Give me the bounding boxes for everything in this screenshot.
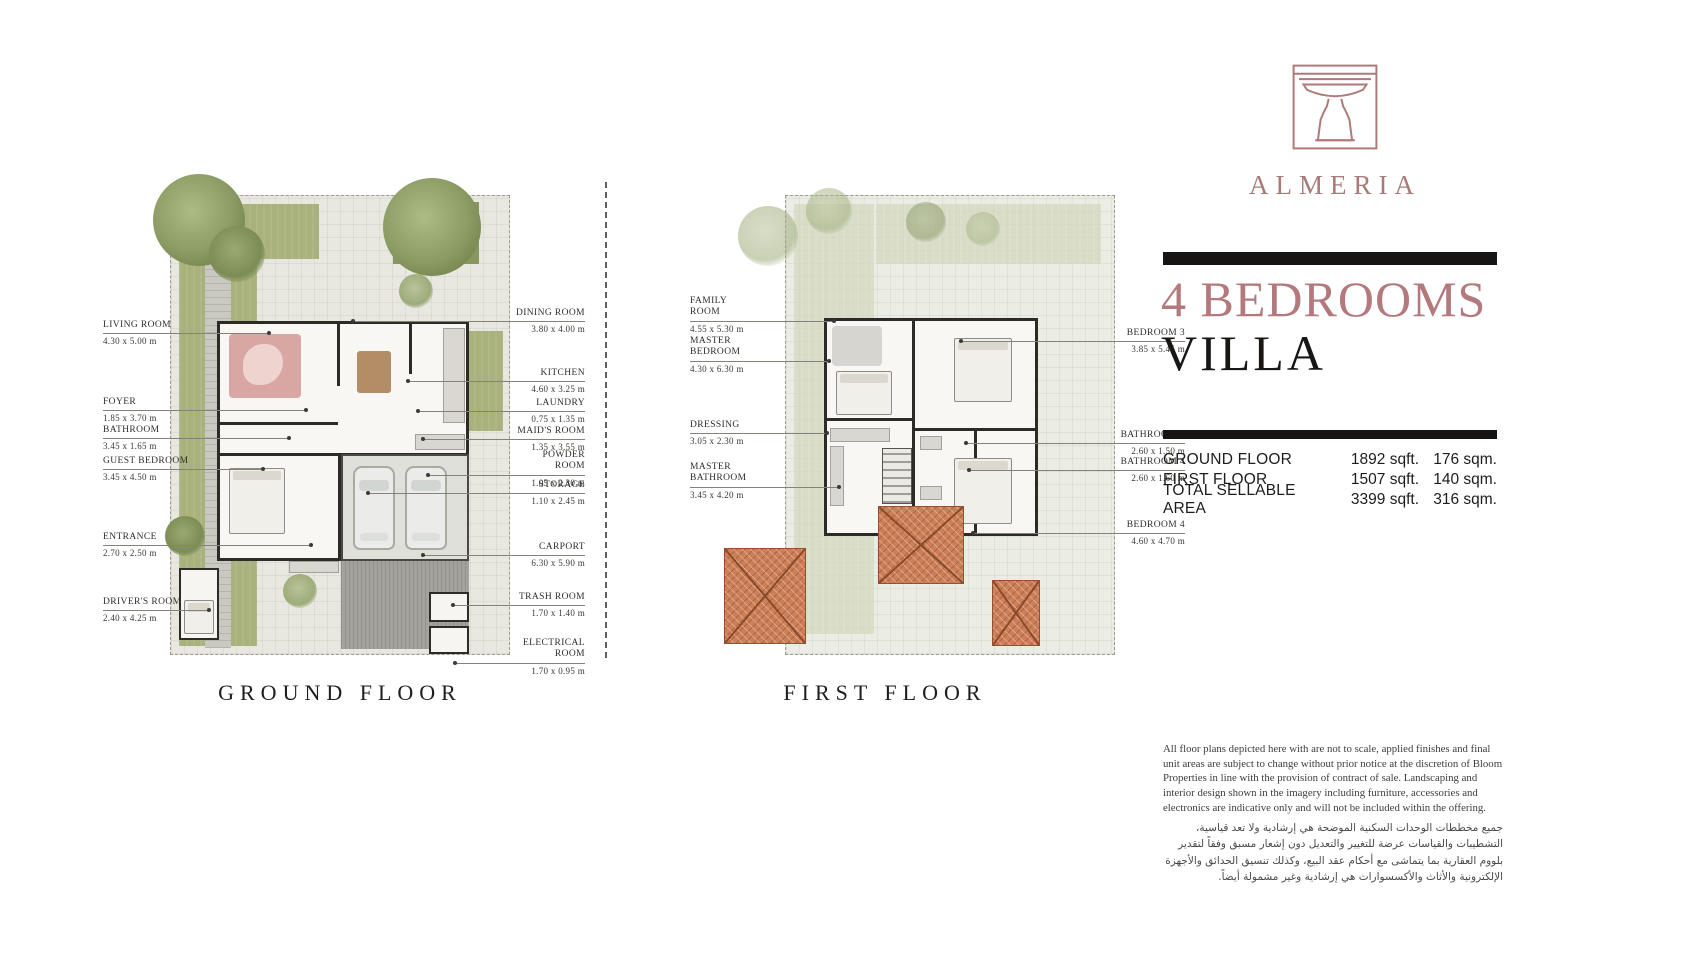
room-name: POWDER ROOM	[517, 450, 585, 472]
room-dimension: 3.45 x 4.50 m	[103, 472, 264, 482]
room-dimension: 4.55 x 5.30 m	[690, 324, 835, 334]
leader-line	[690, 433, 828, 434]
roof-section	[878, 506, 964, 584]
room-dimension: 2.70 x 2.50 m	[103, 548, 312, 558]
page-title-line1: 4 BEDROOMS	[1161, 274, 1486, 324]
room-name: MAID'S ROOM	[422, 426, 585, 437]
tree-faint	[966, 212, 1000, 246]
label-bathroom: BATHROOM 3.45 x 1.65 m	[103, 425, 290, 451]
area-sqm: 316 sqm.	[1419, 491, 1497, 509]
label-maids-room: MAID'S ROOM 1.35 x 3.55 m	[422, 426, 585, 452]
room-dimension: 1.85 x 3.70 m	[103, 413, 307, 423]
leader-line	[427, 475, 585, 476]
floor-label: TOTAL SELLABLE AREA	[1163, 482, 1327, 518]
room-dimension: 6.30 x 5.90 m	[422, 558, 585, 568]
dressing-wardrobe	[830, 428, 890, 442]
label-carport: CARPORT 6.30 x 5.90 m	[422, 542, 585, 568]
tree	[209, 226, 265, 282]
area-table: GROUND FLOOR 1892 sqft. 176 sqm. FIRST F…	[1163, 450, 1497, 510]
tree	[383, 178, 481, 276]
room-name: ENTRANCE	[103, 532, 312, 543]
label-trash-room: TRASH ROOM 1.70 x 1.40 m	[452, 592, 585, 618]
leader-line	[417, 411, 585, 412]
room-name: TRASH ROOM	[452, 592, 585, 603]
room-name: LIVING ROOM	[103, 320, 270, 331]
palm-tree	[399, 274, 433, 308]
room-dimension: 4.30 x 5.00 m	[103, 336, 270, 346]
table-rule-bar	[1163, 430, 1497, 439]
staircase	[882, 448, 912, 504]
tree	[283, 574, 317, 608]
room-name: GUEST BEDROOM	[103, 456, 264, 467]
room-dimension: 1.70 x 0.95 m	[454, 666, 585, 676]
room-dimension: 2.60 x 1.50 m	[965, 446, 1185, 456]
room-name: MASTER BEDROOM	[690, 336, 758, 358]
leader-line	[454, 663, 585, 664]
ground-floor-caption: GROUND FLOOR	[170, 680, 510, 706]
leader-line	[968, 470, 1185, 471]
area-sqft: 3399 sqft.	[1327, 491, 1419, 509]
room-dimension: 2.60 x 1.60 m	[968, 473, 1185, 483]
area-sqft: 1507 sqft.	[1327, 471, 1419, 489]
room-name: FAMILY ROOM	[690, 296, 758, 318]
label-entrance: ENTRANCE 2.70 x 2.50 m	[103, 532, 312, 558]
tree-faint	[738, 206, 798, 266]
label-living-room: LIVING ROOM 4.30 x 5.00 m	[103, 320, 270, 346]
bathroom-fixture	[920, 486, 942, 500]
label-dining-room: DINING ROOM 3.80 x 4.00 m	[352, 308, 585, 334]
room-name: DRIVER'S ROOM	[103, 597, 210, 608]
label-foyer: FOYER 1.85 x 3.70 m	[103, 397, 307, 423]
leader-line	[690, 361, 830, 362]
label-electrical-room: ELECTRICAL ROOM 1.70 x 0.95 m	[454, 638, 585, 676]
disclaimer-arabic: جميع مخططات الوحدات السكنية الموضحة هي إ…	[1163, 820, 1503, 885]
entrance-step	[289, 561, 339, 573]
room-dimension: 4.30 x 6.30 m	[690, 364, 830, 374]
room-dimension: 3.05 x 2.30 m	[690, 436, 828, 446]
room-name: CARPORT	[422, 542, 585, 553]
leader-line	[103, 410, 307, 411]
room-name: BATHROOM 3	[965, 430, 1185, 441]
interior-wall	[827, 418, 912, 421]
leader-line	[103, 438, 290, 439]
leader-line	[422, 555, 585, 556]
bathroom-fixture	[920, 436, 942, 450]
label-bathroom-3: BATHROOM 3 2.60 x 1.50 m	[965, 430, 1185, 456]
label-guest-bedroom: GUEST BEDROOM 3.45 x 4.50 m	[103, 456, 264, 482]
room-dimension: 3.45 x 1.65 m	[103, 441, 290, 451]
tree-faint	[806, 188, 852, 234]
room-name: BEDROOM 3	[960, 328, 1185, 339]
floor-label: GROUND FLOOR	[1163, 451, 1327, 469]
area-sqm: 140 sqm.	[1419, 471, 1497, 489]
room-dimension: 3.80 x 4.00 m	[352, 324, 585, 334]
leader-line	[103, 469, 264, 470]
label-kitchen: KITCHEN 4.60 x 3.25 m	[407, 368, 585, 394]
title-rule-bar	[1163, 252, 1497, 265]
label-storage: STORAGE 1.10 x 2.45 m	[367, 480, 585, 506]
room-dimension: 2.40 x 4.25 m	[103, 613, 210, 623]
fountain-logo-icon	[1290, 62, 1380, 152]
first-floor-plan	[785, 195, 1115, 655]
room-name: DINING ROOM	[352, 308, 585, 319]
room-dimension: 1.10 x 2.45 m	[367, 496, 585, 506]
disclaimer-english: All floor plans depicted here with are n…	[1163, 742, 1503, 815]
label-family-room: FAMILY ROOM 4.55 x 5.30 m	[690, 296, 835, 334]
label-bedroom-3: BEDROOM 3 3.85 x 5.45 m	[960, 328, 1185, 354]
leader-line	[422, 439, 585, 440]
label-drivers-room: DRIVER'S ROOM 2.40 x 4.25 m	[103, 597, 210, 623]
family-room-rug	[832, 326, 882, 366]
label-dressing: DRESSING 3.05 x 2.30 m	[690, 420, 828, 446]
leader-line	[452, 605, 585, 606]
label-bedroom-4: BEDROOM 4 4.60 x 4.70 m	[972, 520, 1185, 546]
master-bed	[836, 371, 892, 415]
page-title-line2: VILLA	[1161, 328, 1326, 378]
room-dimension: 1.70 x 1.40 m	[452, 608, 585, 618]
leader-line	[103, 610, 210, 611]
leader-line	[965, 443, 1185, 444]
leader-line	[960, 341, 1185, 342]
room-name: KITCHEN	[407, 368, 585, 379]
room-dimension: 3.85 x 5.45 m	[960, 344, 1185, 354]
room-name: BATHROOM	[103, 425, 290, 436]
label-bathroom-4: BATHROOM 4 2.60 x 1.60 m	[968, 457, 1185, 483]
leader-line	[352, 321, 585, 322]
leader-line	[690, 321, 835, 322]
table-row: GROUND FLOOR 1892 sqft. 176 sqm.	[1163, 450, 1497, 470]
label-laundry: LAUNDRY 0.75 x 1.35 m	[417, 398, 585, 424]
brochure-page: LIVING ROOM 4.30 x 5.00 m FOYER 1.85 x 3…	[0, 0, 1700, 956]
leader-line	[367, 493, 585, 494]
area-sqft: 1892 sqft.	[1327, 451, 1419, 469]
roof-section	[992, 580, 1040, 646]
interior-wall	[337, 324, 340, 386]
room-dimension: 4.60 x 4.70 m	[972, 536, 1185, 546]
room-name: ELECTRICAL ROOM	[517, 638, 585, 660]
label-master-bedroom: MASTER BEDROOM 4.30 x 6.30 m	[690, 336, 830, 374]
room-dimension: 3.45 x 4.20 m	[690, 490, 840, 500]
tree-faint	[906, 202, 946, 242]
room-name: LAUNDRY	[417, 398, 585, 409]
label-master-bathroom: MASTER BATHROOM 3.45 x 4.20 m	[690, 462, 840, 500]
room-dimension: 0.75 x 1.35 m	[417, 414, 585, 424]
leader-line	[103, 545, 312, 546]
area-sqm: 176 sqm.	[1419, 451, 1497, 469]
plan-divider	[605, 182, 607, 658]
leader-line	[407, 381, 585, 382]
interior-wall	[912, 321, 915, 533]
leader-line	[690, 487, 840, 488]
room-name: BATHROOM 4	[968, 457, 1185, 468]
room-name: MASTER BATHROOM	[690, 462, 758, 484]
first-floor-caption: FIRST FLOOR	[720, 680, 1050, 706]
dining-table	[357, 351, 391, 393]
room-dimension: 4.60 x 3.25 m	[407, 384, 585, 394]
room-name: DRESSING	[690, 420, 828, 431]
leader-line	[972, 533, 1185, 534]
room-name: FOYER	[103, 397, 307, 408]
brand-name: ALMERIA	[1235, 170, 1435, 201]
car-1	[353, 466, 395, 550]
room-name: STORAGE	[367, 480, 585, 491]
room-name: BEDROOM 4	[972, 520, 1185, 531]
roof-section	[724, 548, 806, 644]
table-row: TOTAL SELLABLE AREA 3399 sqft. 316 sqm.	[1163, 490, 1497, 510]
leader-line	[103, 333, 270, 334]
